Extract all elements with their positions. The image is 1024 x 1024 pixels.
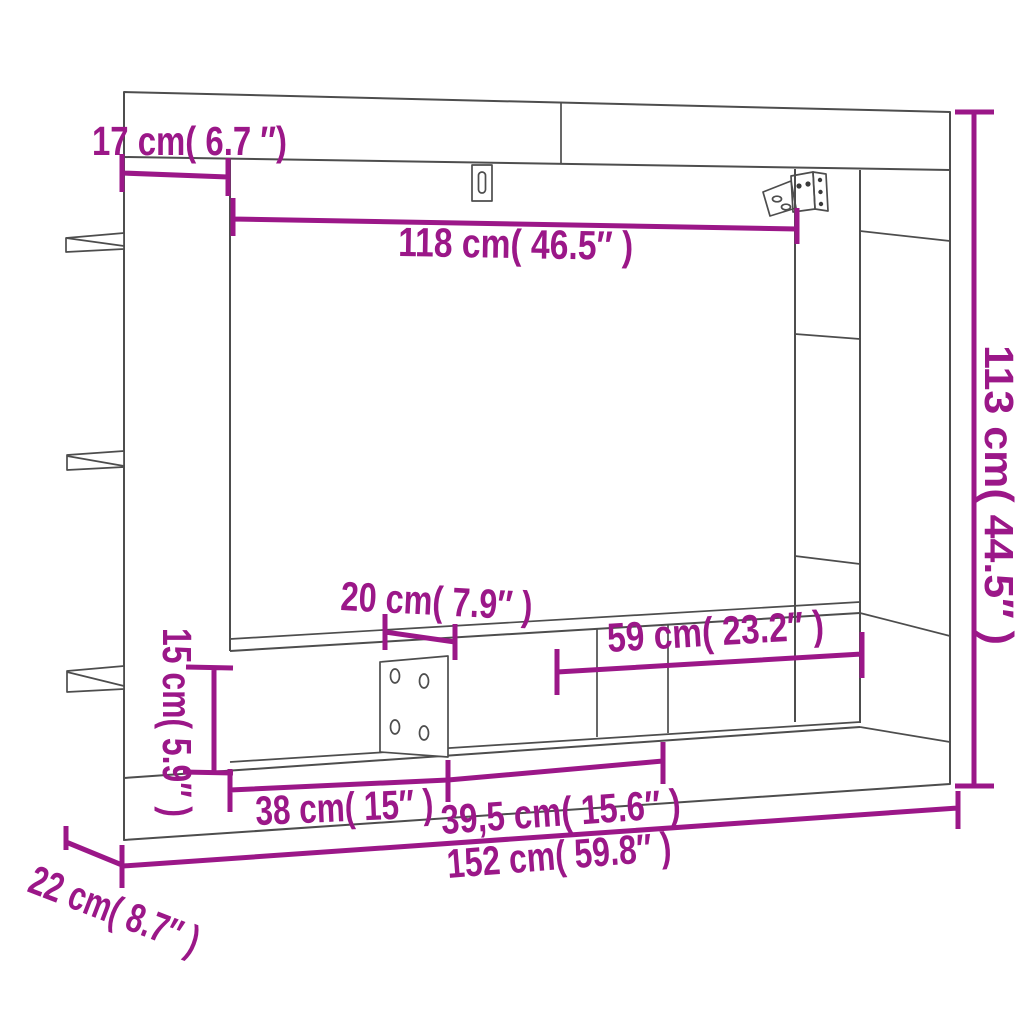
right-column-shelf-top [795, 334, 860, 339]
cable-divider-panel-face [380, 656, 448, 757]
keyhole-mount-icon [472, 165, 492, 201]
dimension-left-compartment-label: 38 cm( 15″ ) [254, 780, 434, 834]
dimension-opening-width: 118 cm( 46.5″ ) [233, 198, 797, 269]
diagram-page: 17 cm( 6.7 ″) 118 cm( 46.5″ ) 113 cm( 44… [0, 0, 1024, 1024]
dimension-opening-width-label: 118 cm( 46.5″ ) [398, 219, 634, 269]
dimension-total-height: 113 cm( 44.5″ ) [955, 112, 1022, 786]
dimension-total-height-label: 113 cm( 44.5″ ) [976, 345, 1022, 645]
dimension-left-compartment: 38 cm( 15″ ) [230, 760, 448, 834]
tv-wall-unit-dimension-diagram: 17 cm( 6.7 ″) 118 cm( 46.5″ ) 113 cm( 44… [0, 0, 1024, 1024]
cable-divider-panel [380, 656, 448, 757]
dimension-side-depth: 22 cm( 8.7″ ) [23, 826, 207, 964]
stand-bottom-inner-edge [230, 722, 860, 762]
bracket-flap-hole [773, 196, 782, 202]
dimension-stand-height-label: 15 cm( 5.9″ ) [154, 628, 200, 817]
bracket-screw [818, 190, 822, 194]
stand-bottom-side-edge [860, 727, 950, 742]
back-panel [124, 92, 950, 840]
dimension-stand-height: 15 cm( 5.9″ ) [154, 628, 233, 817]
bracket-screw [819, 202, 823, 206]
keyhole-plate [472, 165, 492, 201]
stand-top-side-edge [860, 613, 950, 636]
dimension-top-depth: 17 cm( 6.7 ″) [92, 118, 287, 196]
dimension-side-depth-label: 22 cm( 8.7″ ) [23, 856, 207, 963]
dimension-cable-panel-width-label: 20 cm( 7.9″ ) [340, 573, 534, 629]
dimension-cable-panel-width: 20 cm( 7.9″ ) [340, 573, 534, 660]
dimension-top-depth-label: 17 cm( 6.7 ″) [92, 118, 287, 164]
dimension-right-shelf-width: 59 cm( 23.2″ ) [557, 602, 862, 695]
stand-bottom-edge [124, 727, 860, 778]
bracket-screw [796, 183, 801, 188]
left-wall-shelves [66, 233, 124, 692]
dimension-right-shelf-width-label: 59 cm( 23.2″ ) [606, 602, 825, 661]
bracket-screw [818, 178, 822, 182]
right-column-shelf-bottom [795, 556, 860, 564]
bracket-screw [805, 181, 810, 186]
bracket-flap-hole [782, 204, 791, 210]
right-side-panel-seam [860, 231, 950, 241]
